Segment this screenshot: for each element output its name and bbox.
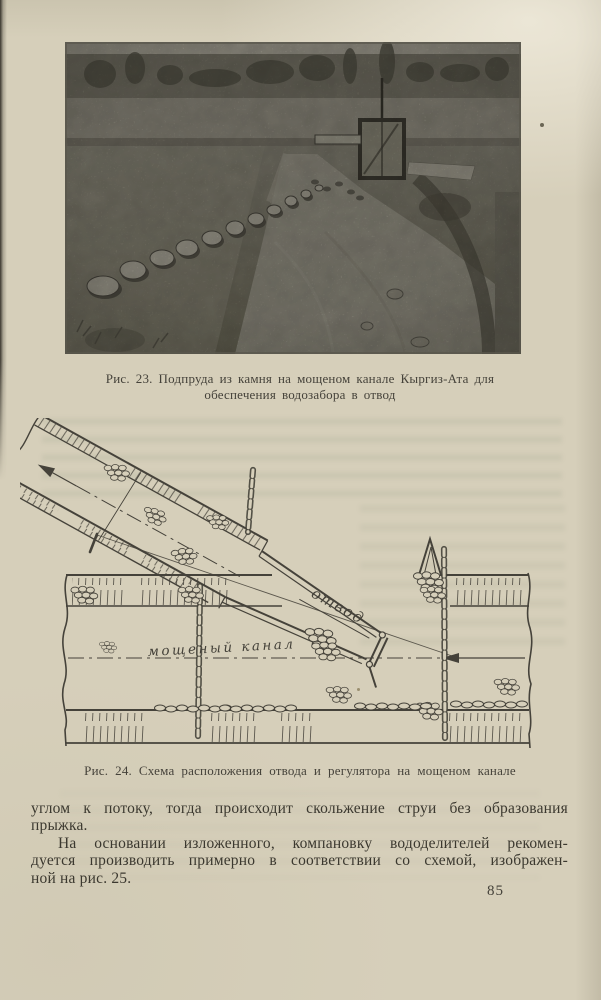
- figure24-caption: Рис. 24. Схема расположения отвода и рег…: [20, 763, 580, 779]
- upper-wing-wall: [419, 539, 441, 575]
- diagram-figure-24: отвод мощеный канал: [20, 418, 540, 756]
- figure23-caption-line1: Рис. 23. Подпруда из камня на мощеном ка…: [60, 371, 540, 387]
- lower-wing-wall: [362, 667, 383, 688]
- paved-channel: [63, 573, 532, 748]
- photo-canvas: [65, 42, 521, 354]
- label-paved-channel: мощеный канал: [147, 636, 295, 660]
- book-page: Рис. 23. Подпруда из камня на мощеном ка…: [0, 0, 601, 1000]
- body-line: дуется производить примерно в соответств…: [31, 852, 568, 869]
- flow-arrow-diversion: [35, 460, 55, 477]
- body-line: На основании изложенного, компановку вод…: [31, 835, 568, 852]
- body-line: углом к потоку, тогда происходит скольже…: [31, 800, 568, 817]
- photo-scene: [65, 42, 521, 354]
- right-break-line: [528, 573, 532, 748]
- diversion-channel: [20, 418, 416, 705]
- body-text: углом к потоку, тогда происходит скольже…: [31, 800, 568, 887]
- regulator-flume: [219, 536, 413, 694]
- figure23-caption-line2: обеспечения водозабора в отвод: [60, 387, 540, 403]
- body-line: прыжка.: [31, 817, 568, 834]
- diagram-canvas: отвод мощеный канал: [20, 418, 540, 756]
- cross-section-line: [99, 471, 141, 543]
- page-number: 85: [487, 883, 504, 900]
- scan-edge-shadow: [0, 0, 7, 480]
- photo-figure-23: [65, 42, 521, 354]
- paper-speck: [540, 123, 544, 127]
- left-break-line: [63, 575, 68, 746]
- figure23-caption: Рис. 23. Подпруда из камня на мощеном ка…: [60, 371, 540, 403]
